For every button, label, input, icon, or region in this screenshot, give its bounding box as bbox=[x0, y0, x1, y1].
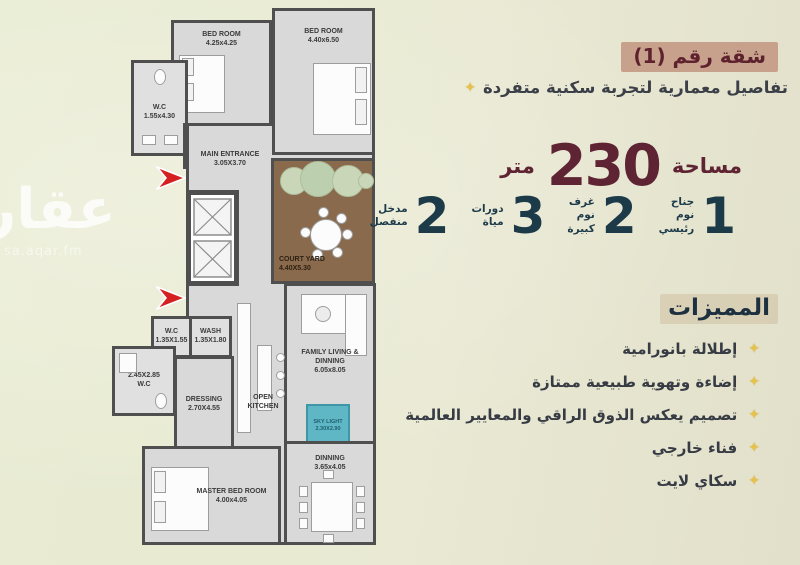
chair-icon bbox=[300, 227, 311, 238]
sparkle-icon: ✦ bbox=[748, 441, 760, 455]
room-master-bedroom: MASTER BED ROOM 4.00x4.05 bbox=[142, 446, 281, 545]
apartment-number-badge: شقة رقم (1) bbox=[621, 42, 778, 72]
chair-icon bbox=[356, 518, 365, 529]
pillow-icon bbox=[154, 471, 166, 493]
feature-item: ✦ سكاي لايت bbox=[405, 472, 760, 490]
feature-text: إطلالة بانورامية bbox=[622, 340, 737, 358]
feature-text: سكاي لايت bbox=[657, 472, 738, 490]
area-unit: متر bbox=[500, 154, 535, 178]
room-label: WASH 1.35X1.80 bbox=[192, 327, 229, 345]
stats-row: 1 جناح نوم رئيسي 2 غرف نوم كبيرة 3 دورات… bbox=[370, 196, 736, 236]
toilet-icon bbox=[142, 135, 156, 145]
shower-icon bbox=[119, 353, 137, 373]
side-table-icon bbox=[315, 306, 331, 322]
stat-label: مدخل منفصل bbox=[370, 203, 408, 229]
room-label: DRESSING 2.70X4.55 bbox=[177, 395, 231, 413]
room-label-main-entrance: MAIN ENTRANCE 3.05X3.70 bbox=[190, 150, 270, 168]
chair-icon bbox=[356, 502, 365, 513]
feature-text: تصميم يعكس الذوق الراقي والمعايير العالم… bbox=[405, 406, 737, 424]
kitchen-counter-icon bbox=[237, 303, 251, 433]
stool-icon bbox=[276, 353, 285, 362]
toilet-icon bbox=[164, 135, 178, 145]
area-label: مساحة bbox=[672, 154, 742, 178]
feature-item: ✦ فناء خارجي bbox=[405, 439, 760, 457]
subtitle-text: تفاصيل معمارية لتجربة سكنية متفردة bbox=[483, 78, 788, 97]
entrance-arrow-icon bbox=[156, 286, 186, 310]
stat-value: 1 bbox=[701, 196, 736, 236]
room-wc-top: W.C 1.55x4.30 bbox=[131, 60, 188, 156]
watermark: عقار sa.aqar.fm bbox=[0, 182, 116, 259]
feature-item: ✦ إطلالة بانورامية bbox=[405, 340, 760, 358]
pillow-icon bbox=[355, 99, 367, 125]
stat-label: دورات مياة bbox=[471, 203, 503, 229]
stat-entrances: 2 مدخل منفصل bbox=[370, 196, 450, 236]
area-value: 230 bbox=[547, 142, 660, 190]
chair-icon bbox=[336, 213, 347, 224]
chair-icon bbox=[342, 229, 353, 240]
chair-icon bbox=[323, 470, 334, 479]
entrance-arrow-icon bbox=[156, 166, 186, 190]
chair-icon bbox=[299, 502, 308, 513]
dining-table-icon bbox=[311, 482, 353, 532]
sparkle-icon: ✦ bbox=[748, 342, 760, 356]
stat-label: جناح نوم رئيسي bbox=[659, 196, 695, 235]
chair-icon bbox=[323, 534, 334, 543]
feature-text: إضاءة وتهوية طبيعية ممتازة bbox=[532, 373, 737, 391]
stat-label: غرف نوم كبيرة bbox=[567, 196, 594, 235]
pillow-icon bbox=[154, 501, 166, 523]
features-title: المميزات bbox=[660, 294, 778, 324]
feature-item: ✦ تصميم يعكس الذوق الراقي والمعايير العا… bbox=[405, 406, 760, 424]
elevator-icon bbox=[186, 190, 239, 290]
room-label: FAMILY LIVING & DINNING 6.05x8.05 bbox=[287, 348, 373, 375]
toilet-icon bbox=[155, 393, 167, 409]
stat-value: 2 bbox=[602, 196, 637, 236]
room-label: 2.45X2.85 W.C bbox=[115, 371, 173, 389]
room-dressing: DRESSING 2.70X4.55 bbox=[174, 356, 234, 456]
stat-value: 2 bbox=[415, 196, 450, 236]
room-label: W.C 1.35X1.55 bbox=[154, 327, 189, 345]
pillow-icon bbox=[355, 67, 367, 93]
stool-icon bbox=[276, 371, 285, 380]
feature-item: ✦ إضاءة وتهوية طبيعية ممتازة bbox=[405, 373, 760, 391]
wall-segment bbox=[183, 123, 188, 169]
stat-bedrooms: 2 غرف نوم كبيرة bbox=[567, 196, 636, 236]
chair-icon bbox=[299, 518, 308, 529]
room-wc-left: 2.45X2.85 W.C bbox=[112, 346, 176, 416]
room-court-yard: COURT YARD 4.40X5.30 bbox=[271, 158, 375, 284]
sink-icon bbox=[154, 69, 166, 85]
chair-icon bbox=[356, 486, 365, 497]
features-list: ✦ إطلالة بانورامية ✦ إضاءة وتهوية طبيعية… bbox=[405, 340, 760, 490]
sofa-icon bbox=[345, 294, 367, 356]
chair-icon bbox=[318, 207, 329, 218]
room-label: COURT YARD 4.40X5.30 bbox=[274, 255, 372, 273]
tree-icon bbox=[300, 161, 336, 197]
tree-icon bbox=[358, 173, 374, 189]
room-label: BED ROOM 4.40x6.50 bbox=[275, 27, 372, 45]
room-bedroom-top-right: BED ROOM 4.40x6.50 bbox=[272, 8, 375, 155]
room-label: OPEN KITCHEN bbox=[243, 393, 283, 411]
aqar-site-url: sa.aqar.fm bbox=[0, 244, 116, 259]
room-dinning: DINNING 3.65x4.05 bbox=[284, 441, 376, 545]
area-row: مساحة 230 متر bbox=[500, 142, 742, 190]
stat-master-suite: 1 جناح نوم رئيسي bbox=[659, 196, 736, 236]
room-label: BED ROOM 4.25x4.25 bbox=[174, 30, 269, 48]
room-label: MASTER BED ROOM 4.00x4.05 bbox=[185, 487, 278, 505]
room-open-kitchen: OPEN KITCHEN bbox=[232, 298, 286, 470]
flyer-canvas: BED ROOM 4.25x4.25 BED ROOM 4.40x6.50 W.… bbox=[0, 0, 800, 565]
sparkle-icon: ✦ bbox=[748, 408, 760, 422]
aqar-logo: عقار bbox=[0, 182, 116, 238]
sparkle-icon: ✦ bbox=[464, 81, 476, 95]
stat-value: 3 bbox=[511, 196, 546, 236]
chair-icon bbox=[299, 486, 308, 497]
stat-bathrooms: 3 دورات مياة bbox=[471, 196, 545, 236]
room-label: W.C 1.55x4.30 bbox=[134, 103, 185, 121]
room-wash: WASH 1.35X1.80 bbox=[189, 316, 232, 358]
subtitle: تفاصيل معمارية لتجربة سكنية متفردة ✦ bbox=[464, 78, 788, 97]
sparkle-icon: ✦ bbox=[748, 375, 760, 389]
sparkle-icon: ✦ bbox=[748, 474, 760, 488]
feature-text: فناء خارجي bbox=[652, 439, 738, 457]
room-label: SKY LIGHT 2.30X2.90 bbox=[308, 419, 348, 433]
